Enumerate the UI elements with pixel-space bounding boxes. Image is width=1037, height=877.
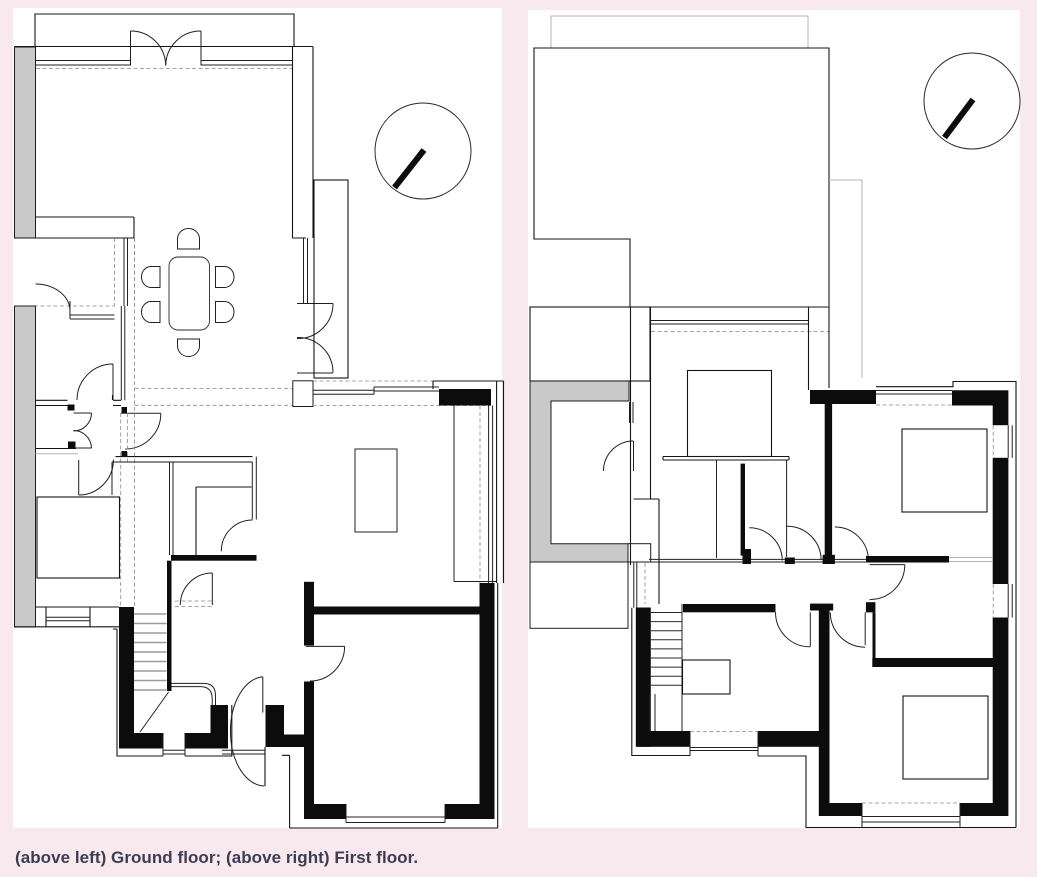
svg-text:(above left) Ground floor; (ab: (above left) Ground floor; (above right)… [15, 848, 418, 867]
